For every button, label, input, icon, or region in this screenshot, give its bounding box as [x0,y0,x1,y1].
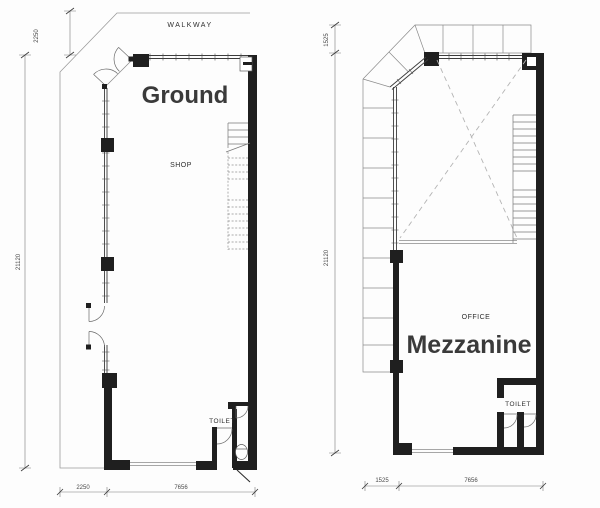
mezzanine-toilet: TOILET [497,378,538,455]
wc-fixture [236,445,248,460]
ground-toilet-label: TOILET [209,418,235,425]
dim-ground-side-top: 2250 [34,29,40,43]
exterior-door-leaf [237,470,250,482]
floor-plan-drawing: WALKWAY 2250 21120 2250 7656 [0,0,600,508]
mezzanine-walls [390,52,544,455]
ground-title: Ground [142,82,229,109]
walkway-label: WALKWAY [167,22,212,29]
dim-ground-bottom-left: 2250 [76,485,90,491]
shop-label: SHOP [170,162,192,169]
dim-mezz-side-top: 1525 [324,33,330,47]
mezzanine-toilet-label: TOILET [505,401,531,408]
dim-ground-side-main: 21120 [16,253,22,270]
void-area [399,60,526,244]
dim-mezz-bottom-right: 7656 [464,478,478,484]
mezzanine-staircase [513,115,536,243]
office-label: OFFICE [462,314,491,321]
dim-ground-bottom-right: 7656 [174,485,188,491]
entrance-doors [94,47,134,89]
dim-mezz-bottom-left: 1525 [375,478,389,484]
floor-plan-sheet: WALKWAY 2250 21120 2250 7656 [0,0,600,508]
side-doors [86,303,105,350]
dim-mezz-side-main: 21120 [324,249,330,266]
mezzanine-dimensions: 1525 21120 1525 7656 [324,22,546,491]
ground-floor-plan: WALKWAY 2250 21120 2250 7656 [16,8,258,497]
canopy-panels [363,25,531,372]
ground-staircase [226,123,250,250]
mezzanine-title: Mezzanine [406,331,531,359]
mezzanine-plan: 1525 21120 1525 7656 [324,22,546,491]
